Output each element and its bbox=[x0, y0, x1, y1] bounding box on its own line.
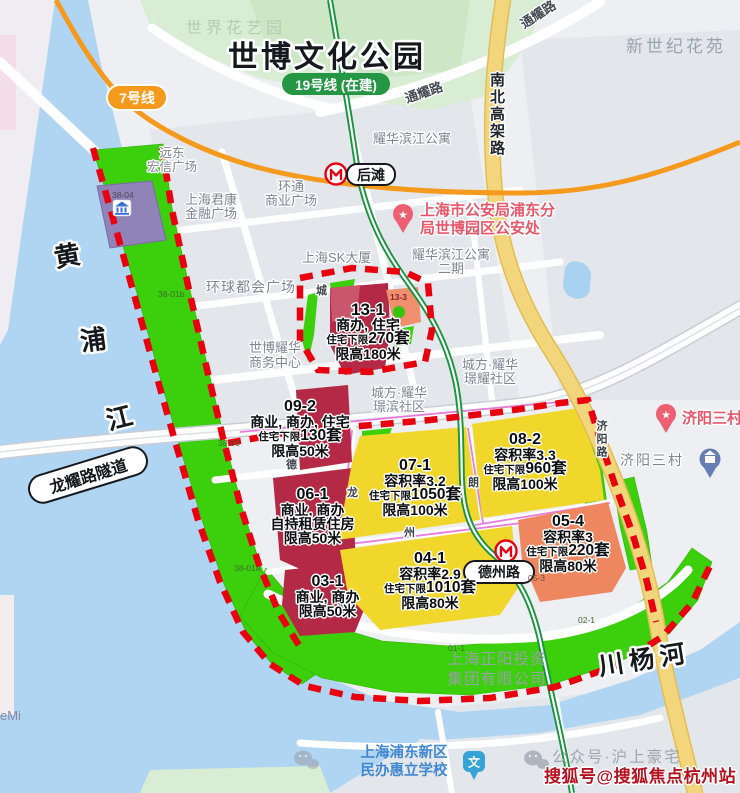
label-line: 远东 bbox=[159, 146, 184, 160]
parcel-code: 38-01a bbox=[234, 563, 260, 573]
parcel-id: 04-1 bbox=[350, 550, 510, 567]
parcel-code: 01-1 bbox=[448, 643, 465, 653]
parcel-units: 220套 bbox=[568, 542, 609, 559]
south-bank-green bbox=[140, 766, 330, 793]
parcel-height: 限高80米 bbox=[350, 596, 510, 610]
label-line: 上海君康 bbox=[185, 192, 237, 207]
west-bank-pink bbox=[0, 35, 16, 130]
jiyang-village-poi-label[interactable]: 济阳三村 bbox=[682, 407, 740, 428]
label-line: 二期 bbox=[438, 261, 464, 276]
junkang-plaza-label: 上海君康 金融广场 bbox=[178, 193, 244, 221]
expo-park-title: 世博文化公园 bbox=[228, 32, 426, 76]
label-line: 商业广场 bbox=[265, 193, 317, 208]
parcel-prefix: 住宅下限 bbox=[384, 583, 426, 595]
huantong-plaza-label: 环通 商业广场 bbox=[258, 180, 324, 208]
school-glyph: 文 bbox=[468, 755, 481, 770]
road-glyph: 城 bbox=[316, 282, 327, 298]
parcel-height: 限高180米 bbox=[288, 347, 448, 361]
label-line: 璟滨社区 bbox=[373, 399, 425, 414]
yuandong-plaza-label: 远东 宏信广场 bbox=[138, 146, 206, 174]
label-line: 环通 bbox=[278, 179, 304, 194]
global-metro-plaza-label: 环球都会广场 bbox=[206, 277, 296, 297]
parcel-height: 限高100米 bbox=[335, 503, 495, 517]
parcel-height: 限高100米 bbox=[445, 477, 605, 491]
jingyao-community-label: 城方·耀华 璟耀社区 bbox=[455, 358, 525, 386]
partial-map-label: eMi bbox=[0, 708, 21, 723]
label-line: 城方·耀华 bbox=[462, 357, 518, 372]
parcel-units: 130套 bbox=[300, 427, 341, 444]
yaohua-apartment-2-label: 耀华滨江公寓 二期 bbox=[405, 248, 497, 276]
label-line: 上海正阳投资 bbox=[447, 651, 546, 668]
parcel-code: 05-3 bbox=[528, 573, 545, 583]
label-line: 璟耀社区 bbox=[464, 371, 516, 386]
parcel-id: 13-1 bbox=[288, 301, 448, 318]
parcel-height: 限高50米 bbox=[220, 444, 380, 458]
parcel-prefix: 住宅下限 bbox=[369, 490, 411, 502]
star-icon: ★ bbox=[661, 410, 671, 422]
line7-badge[interactable]: 7号线 bbox=[106, 84, 168, 111]
world-flower-garden-label: 世界花艺园 bbox=[186, 14, 286, 38]
police-station-label[interactable]: 上海市公安局浦东分 局世博园区公安处 bbox=[420, 202, 555, 238]
parcel-09-2-label[interactable]: 09-2 商业, 商办, 住宅 住宅下限130套 限高50米 bbox=[220, 398, 380, 458]
label-line: 耀华滨江公寓 bbox=[412, 247, 490, 262]
parcel-prefix: 住宅下限 bbox=[526, 546, 568, 558]
southwest-bank bbox=[0, 595, 14, 715]
line19-badge[interactable]: 19号线 (在建) bbox=[282, 73, 390, 95]
label-line: 集团有限公司 bbox=[447, 671, 546, 688]
label-line: 局世博园区公安处 bbox=[420, 220, 540, 237]
huili-school-label[interactable]: 上海浦东新区 民办惠立学校 bbox=[348, 744, 460, 780]
parcel-prefix: 住宅下限 bbox=[326, 334, 368, 346]
parcel-code: 38-06 bbox=[218, 438, 240, 448]
parcel-id: 05-4 bbox=[498, 513, 638, 530]
label-line: 民办惠立学校 bbox=[361, 763, 448, 779]
nanbei-elevated-road-label: 南北高架路 bbox=[486, 72, 507, 157]
museum-icon bbox=[113, 200, 131, 216]
zhengyang-investment-label: 上海正阳投资 集团有限公司 bbox=[432, 650, 562, 690]
label-line: 金融广场 bbox=[185, 206, 237, 221]
parcel-13-1-label[interactable]: 13-1 商办, 住宅 住宅下限270套 限高180米 bbox=[288, 301, 448, 361]
parcel-units: 960套 bbox=[525, 460, 566, 477]
parcel-08-2-label[interactable]: 08-2 容积率3.3 住宅下限960套 限高100米 bbox=[445, 431, 605, 491]
parcel-code: 02-1 bbox=[578, 615, 595, 625]
parcel-id: 08-2 bbox=[445, 431, 605, 448]
new-century-garden-label: 新世纪花苑 bbox=[626, 32, 726, 57]
parcel-code: 13-3 bbox=[390, 292, 407, 302]
pond bbox=[563, 261, 591, 299]
label-line: 上海市公安局浦东分 bbox=[420, 202, 555, 219]
parcel-height: 限高50米 bbox=[235, 531, 390, 545]
parcel-04-1-label[interactable]: 04-1 容积率2.9 住宅下限1010套 限高80米 bbox=[350, 550, 510, 610]
planning-map: ★ ★ 文 世博文化公园 世界花艺园 新世纪花苑 黄 浦 江 川杨河 7号线 1… bbox=[0, 0, 740, 793]
star-icon: ★ bbox=[398, 210, 408, 222]
parcel-code: 38-01b bbox=[158, 289, 184, 299]
parcel-prefix: 住宅下限 bbox=[258, 431, 300, 443]
sk-tower-label: 上海SK大厦 bbox=[302, 247, 371, 266]
parcel-height: 限高80米 bbox=[498, 559, 638, 573]
jiyang-village-label: 济阳三村 bbox=[620, 450, 684, 470]
parcel-code: 38-04 bbox=[112, 190, 134, 200]
road-glyph: 州 bbox=[404, 524, 415, 540]
yaohua-apartment-label: 耀华滨江公寓 bbox=[373, 128, 451, 147]
huangpu-river-label: 浦 bbox=[78, 318, 109, 358]
houtan-station-badge[interactable]: 后滩 bbox=[346, 163, 396, 186]
label-line: 上海浦东新区 bbox=[361, 745, 448, 761]
label-line: 宏信广场 bbox=[147, 160, 197, 174]
parcel-prefix: 住宅下限 bbox=[483, 464, 525, 476]
parcel-units: 1010套 bbox=[426, 579, 476, 596]
parcel-extra: 自持租赁住房 bbox=[235, 517, 390, 531]
sohu-watermark-text: 搜狐号@搜狐焦点杭州站 bbox=[544, 762, 736, 787]
metro-logo-houtan[interactable] bbox=[326, 164, 347, 185]
parcel-units: 270套 bbox=[368, 330, 409, 347]
parcel-id: 09-2 bbox=[220, 398, 380, 415]
parcel-05-4-label[interactable]: 05-4 容积率3 住宅下限220套 限高80米 bbox=[498, 513, 638, 573]
